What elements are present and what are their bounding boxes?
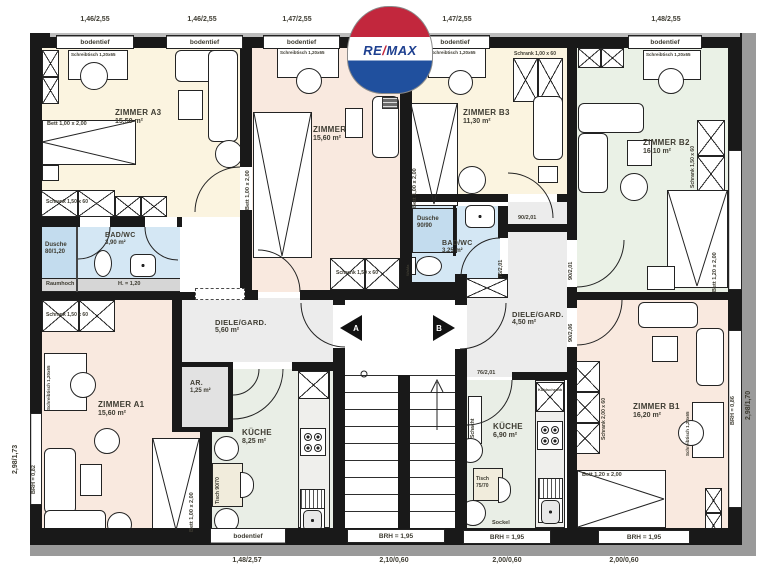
label-desk-a3: Schreibtisch 1,20x65: [71, 52, 116, 57]
dim-right: 2,98/1,70: [745, 366, 753, 444]
armchair-a3: [215, 140, 243, 168]
fridge-cell: [298, 371, 329, 399]
label-diele-a: DIELE/GARD. 5,60 m²: [215, 318, 267, 335]
washbasin-bad-b: [465, 205, 495, 228]
dim-bottom-3: 2,00/0,60: [472, 557, 542, 565]
window-top-1: bodentief: [56, 35, 134, 49]
label-tisch-a: Tisch 90/70: [215, 468, 221, 504]
sofa-b1-top: [638, 302, 698, 328]
room-area: 15,60 m²: [313, 135, 346, 143]
wardrobe-cell: [466, 278, 508, 298]
wall-b2-b1: [567, 292, 728, 300]
side-table-b3: [538, 166, 558, 183]
window-label: bodentief: [190, 39, 219, 46]
wall-stair-top: [333, 292, 467, 300]
desk-chair-a3: [80, 62, 108, 90]
burner: [304, 444, 312, 452]
room-name: KÜCHE: [242, 428, 272, 438]
label-bett-a1: Bett 1,00 x 2,00: [189, 474, 196, 532]
wardrobe-cell: [513, 58, 538, 102]
balloon-envelope: RE/MAX: [347, 6, 433, 94]
wall-a3-bad-1: [30, 217, 80, 227]
desk-chair-b1: [678, 420, 704, 446]
room-area: 15,60 m²: [98, 410, 144, 418]
wall-b3-bottom-2: [557, 194, 567, 202]
window-label: BRH = 1,95: [490, 534, 524, 541]
room-ar: [177, 362, 233, 432]
burner: [551, 426, 559, 434]
shadow-right: [742, 33, 756, 556]
wall-b-vert-1: [567, 48, 577, 240]
room-area: 16,10 m²: [643, 148, 690, 156]
toilet-bad-a: [94, 250, 112, 277]
sofa-a1-side: [44, 448, 76, 514]
window-top-2: bodentief: [166, 35, 243, 49]
room-name: ZIMMER A1: [98, 400, 144, 410]
chair-a1-1: [94, 428, 120, 454]
wall-a3-mitte-2: [240, 210, 252, 298]
window-top-5: bodentief: [628, 35, 702, 49]
window-label: bodentief: [650, 39, 679, 46]
room-name: DIELE/GARD.: [215, 318, 267, 327]
window-label: bodentief: [287, 39, 316, 46]
stairs-left-flight: [345, 375, 398, 528]
shadow-bottom: [30, 545, 756, 556]
room-name: ZIMMER A3: [115, 108, 161, 118]
dim-bottom-4: 2,00/0,60: [589, 557, 659, 565]
side-table-a1: [80, 464, 102, 496]
room-name: ZIMMER: [313, 125, 346, 135]
dim-top-3: 1,47/2,55: [262, 16, 332, 24]
room-area: 5,60 m²: [215, 327, 267, 335]
label-bad-a: BAD/WC 3,90 m²: [105, 232, 136, 248]
sofa-b3: [533, 96, 563, 160]
window-right-label: BRH = 0,86: [730, 355, 737, 425]
door-label-kueche-b: 76/2,01: [477, 370, 495, 377]
wall-stair-left-2: [333, 348, 345, 528]
window-label: BRH = 1,95: [627, 534, 661, 541]
wardrobe-b2-right: [697, 120, 725, 192]
wardrobe-cell: [141, 196, 167, 217]
label-schrank-a1: Schrank 1,50 x 60: [46, 312, 88, 318]
bed-b1: [577, 470, 666, 528]
label-bett-b3: Bett 1,00 x 2,00: [412, 146, 419, 208]
wardrobe-cell: [42, 77, 59, 104]
bench-b2: [647, 266, 675, 290]
label-schrank-b3: Schrank 1,00 x 60: [514, 51, 556, 57]
room-area: 3,25 m²: [442, 248, 473, 255]
remax-re: RE: [363, 43, 382, 58]
label-zimmer-b2: ZIMMER B2 16,10 m²: [643, 138, 690, 156]
label-tisch-b: Tisch 75/70: [476, 476, 500, 489]
stove-kueche-b: [537, 421, 563, 450]
dim-top-2: 1,46/2,55: [167, 16, 237, 24]
door-label-b3: 90/2,01: [518, 215, 536, 222]
wardrobe-cell: [42, 50, 59, 77]
niche-diele-a: [195, 288, 245, 300]
burner: [551, 437, 559, 445]
label-desk-b3: Schreibtisch 1,20x65: [431, 50, 476, 55]
label-schrank-mitte: Schrank 1,50 x 60: [336, 270, 378, 276]
balloon-basket: [382, 97, 398, 109]
bed-b2: [667, 190, 728, 288]
label-desk-b1: Schreibtisch 1,20x65: [685, 406, 690, 456]
bed-mitte: [253, 112, 312, 258]
label-desk-b2: Schreibtisch 1,20x65: [646, 52, 691, 57]
window-top-3: bodentief: [263, 35, 340, 49]
window-label: BRH = 1,95: [379, 533, 413, 540]
label-dusche-b: Dusche 90/90: [417, 216, 439, 230]
wardrobe-cell: [697, 120, 725, 156]
sofa-b2-side: [578, 133, 608, 193]
sink-kueche-a: [300, 489, 325, 530]
wardrobe-a3-left: [42, 50, 59, 104]
side-table-a3: [178, 90, 203, 120]
washbasin-bad-a: [130, 254, 156, 277]
nightstand-a3: [42, 165, 59, 181]
label-kuehlschrank: Kühlschrank: [538, 388, 562, 393]
label-bad-b: BAD/WC 3,25 m²: [442, 240, 473, 256]
stairwell-landing: [345, 300, 455, 375]
floor-plan: bodentief bodentief bodentief bodentief …: [0, 0, 771, 568]
desk-chair-a1: [70, 372, 96, 398]
dim-top-1: 1,46/2,55: [60, 16, 130, 24]
room-diele-b-upper: [508, 202, 567, 292]
chair-b3: [458, 166, 486, 194]
window-bottom-kueche-b: BRH = 1,95: [463, 530, 551, 544]
room-name: KÜCHE: [493, 422, 523, 432]
wardrobe-cell: [697, 156, 725, 192]
sink-kueche-b: [538, 478, 563, 523]
wall-alcove: [505, 224, 567, 232]
stairs-right-flight: [410, 375, 455, 528]
window-right-b2: [728, 150, 742, 290]
window-label: bodentief: [440, 39, 469, 46]
wardrobe-cell: [705, 488, 722, 513]
label-zimmer-b1: ZIMMER B1 16,20 m²: [633, 402, 680, 420]
label-schrank-b2: Schrank 1,50 x 60: [690, 126, 696, 188]
label-kueche-a: KÜCHE 8,25 m²: [242, 428, 272, 446]
chair-kueche-a-1: [214, 436, 239, 461]
label-bett-a3: Bett 1,00 x 2,00: [47, 121, 87, 128]
remax-wordmark: RE/MAX: [363, 43, 417, 58]
room-name: Dusche: [45, 242, 67, 249]
label-raumhoch: Raumhoch: [46, 281, 74, 288]
wall-a1-ar: [172, 298, 182, 432]
label-zimmer-mitte: ZIMMER 15,60 m²: [313, 125, 346, 143]
label-schrank-a3: Schrank 1,50 x 60: [46, 199, 88, 205]
wall-stair-right-2: [455, 349, 467, 372]
wall-a3-bad-2: [110, 217, 145, 227]
dim-bottom-1: 1,48/2,57: [212, 557, 282, 565]
dim-top-5: 1,48/2,55: [631, 16, 701, 24]
stove-kueche-a: [300, 428, 326, 456]
wall-dusche-a-partition: [76, 227, 78, 292]
label-bett-b1: Bett 1,20 x 2,00: [582, 472, 622, 479]
burner: [314, 444, 322, 452]
room-diele-b-lower: [467, 285, 567, 377]
room-size: 80/1,20: [45, 249, 67, 256]
label-desk-mitte: Schreibtisch 1,20x65: [280, 50, 325, 55]
room-area: 1,25 m²: [190, 388, 211, 395]
window-bottom-b1: BRH = 1,95: [598, 530, 690, 544]
drainboard: [301, 490, 324, 509]
label-ar: AR. 1,25 m²: [190, 380, 211, 396]
label-desk-a1: Schreibtisch 1,20x65: [46, 358, 51, 410]
wall-a1-kueche: [200, 432, 212, 528]
room-area: 4,50 m²: [512, 319, 564, 327]
door-label-b1: 90/2,06: [568, 306, 575, 342]
window-label: bodentief: [80, 39, 109, 46]
drainboard: [539, 479, 562, 499]
sofa-b2-top: [578, 103, 644, 133]
wall-bad-b-bottom: [400, 282, 470, 292]
wall-bad-b-right-1: [498, 206, 508, 238]
door-label-bad-b: 76/2,01: [498, 242, 505, 278]
toilet-bad-b: [416, 256, 442, 276]
dim-bottom-2: 2,10/0,60: [359, 557, 429, 565]
room-area: 6,90 m²: [493, 432, 523, 440]
label-diele-b: DIELE/GARD. 4,50 m²: [512, 310, 564, 327]
window-bottom-kueche-a: bodentief: [210, 528, 286, 544]
label-dusche-a: Dusche 80/1,20: [45, 242, 67, 256]
label-zimmer-b3: ZIMMER B3 11,30 m²: [463, 108, 510, 126]
wardrobe-b2-top: [578, 48, 624, 68]
sofa-a3-side: [208, 50, 238, 142]
wall-stair-divider: [398, 375, 410, 528]
label-kueche-b: KÜCHE 6,90 m²: [493, 422, 523, 440]
wardrobe-diele-b: [466, 278, 508, 298]
wall-b-vert-3: [567, 347, 577, 528]
armchair-b2: [620, 173, 648, 201]
side-table-b1: [652, 336, 678, 362]
label-zimmer-a3: ZIMMER A3 15,50 m²: [115, 108, 161, 126]
wardrobe-a3-row-2: [115, 196, 167, 217]
wall-kueche-b-left: [455, 372, 467, 528]
room-area: 15,50 m²: [115, 118, 161, 126]
basin: [541, 500, 560, 524]
label-bett-b2: Bett 1,20 x 2,00: [712, 234, 719, 292]
label-wama: WaMa: [406, 258, 411, 276]
room-area: 3,90 m²: [105, 240, 136, 247]
label-zimmer-a1: ZIMMER A1 15,60 m²: [98, 400, 144, 418]
label-schacht: Schacht: [470, 402, 476, 438]
room-name: DIELE/GARD.: [512, 310, 564, 319]
wardrobe-cell: [115, 196, 141, 217]
burner: [314, 433, 322, 441]
window-bottom-stair: BRH = 1,95: [347, 529, 445, 543]
remax-balloon-logo: RE/MAX: [347, 6, 433, 110]
wall-kueche-b-top: [512, 372, 567, 380]
burner: [304, 433, 312, 441]
window-label: bodentief: [233, 533, 262, 540]
door-label-b2: 90/2,01: [568, 244, 575, 280]
fridge-kueche-a: [298, 371, 329, 399]
room-area: 8,25 m²: [242, 438, 272, 446]
label-h120: H. = 1,20: [118, 281, 140, 288]
label-bett-mitte: Bett 1,00 x 2,00: [245, 148, 252, 210]
label-schrank-b1: Schrank 2,00 x 60: [601, 378, 607, 440]
burner: [541, 437, 549, 445]
wardrobe-cell: [601, 48, 624, 68]
remax-max: MAX: [386, 43, 416, 58]
room-size: 90/90: [417, 223, 439, 230]
desk-chair-b3: [448, 70, 473, 95]
dim-left: 2,98/1,73: [12, 420, 20, 498]
window-left-label: BRH = 0,82: [31, 424, 38, 494]
room-name: ZIMMER B1: [633, 402, 680, 412]
desk-chair-b2: [658, 68, 684, 94]
label-sockel: Sockel: [492, 520, 510, 527]
room-area: 11,30 m²: [463, 118, 510, 126]
room-area: 16,20 m²: [633, 412, 680, 420]
desk-chair-mitte: [296, 68, 322, 94]
burner: [541, 426, 549, 434]
wall-a3-bad-3: [177, 217, 182, 227]
room-name: ZIMMER B3: [463, 108, 510, 118]
wardrobe-cell: [578, 48, 601, 68]
room-name: Dusche: [417, 216, 439, 223]
armchair-b1: [696, 328, 724, 386]
side-table-mitte: [345, 108, 363, 138]
room-name: ZIMMER B2: [643, 138, 690, 148]
